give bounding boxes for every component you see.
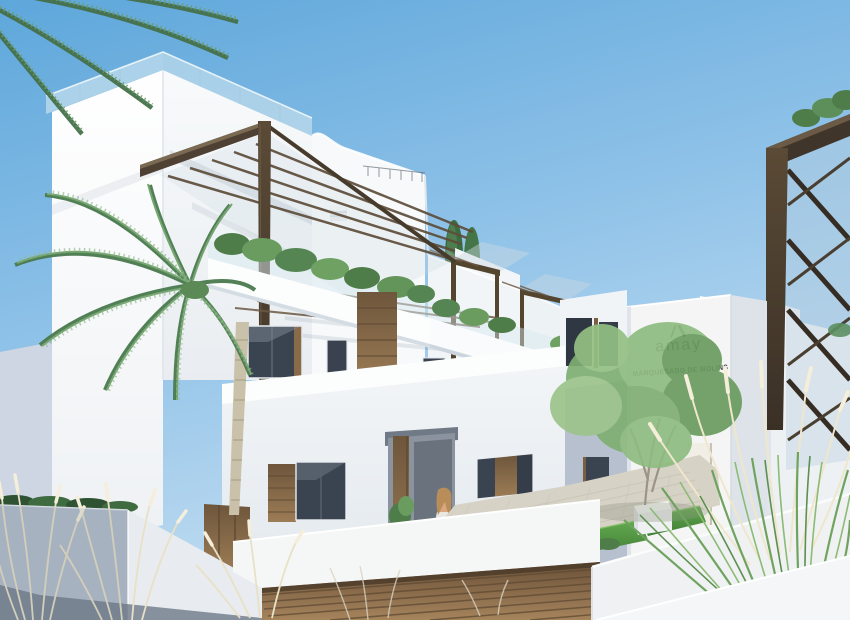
- architectural-render: amay MARQUESADO DE MOLINS: [0, 0, 850, 620]
- window-mid-left: [248, 326, 302, 378]
- render-viewport: amay MARQUESADO DE MOLINS: [0, 0, 850, 620]
- window-shutter-left: [268, 462, 346, 522]
- window-ground-right: [477, 454, 533, 500]
- wall-shade-overlay: [0, 505, 128, 620]
- right-edge-pergola: [766, 90, 850, 470]
